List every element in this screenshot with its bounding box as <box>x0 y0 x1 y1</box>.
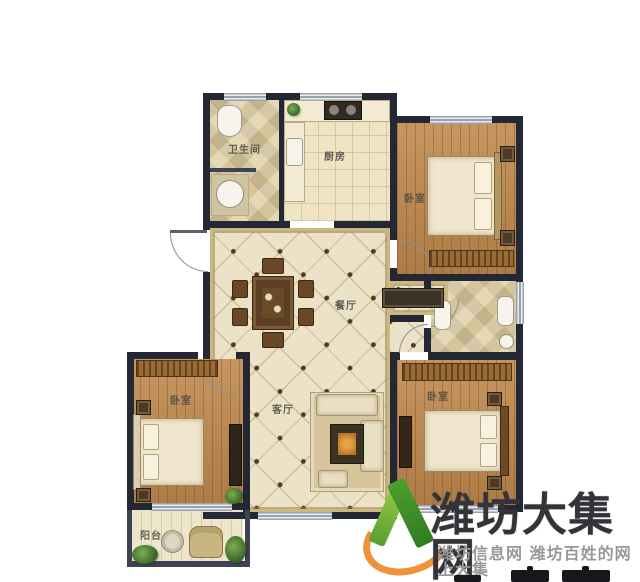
wall <box>232 503 250 510</box>
window <box>516 282 524 324</box>
wall <box>390 315 397 322</box>
dining-chair <box>298 308 314 326</box>
kitchen-sink <box>286 138 303 166</box>
pillow <box>480 415 497 439</box>
wall <box>127 352 198 359</box>
wardrobe <box>136 360 218 377</box>
wall <box>390 100 397 240</box>
cropped-text-fragment <box>582 566 589 582</box>
wall <box>516 116 523 282</box>
window <box>430 116 492 124</box>
tv-cabinet <box>229 424 242 486</box>
wall <box>428 352 523 360</box>
nightstand <box>500 230 515 246</box>
window <box>258 512 332 520</box>
nightstand <box>487 392 502 406</box>
bed-headboard <box>494 152 502 240</box>
plant-icon <box>225 488 243 504</box>
dresser <box>399 416 412 468</box>
wall <box>127 503 152 510</box>
pouf-chair <box>161 530 184 553</box>
sofa <box>316 394 378 416</box>
toilet-icon <box>497 296 514 326</box>
cropped-text-fragment <box>527 566 533 582</box>
dining-chair <box>232 308 248 326</box>
wardrobe <box>402 363 512 381</box>
dining-chair <box>298 280 314 298</box>
pillow <box>143 424 159 450</box>
sink-icon <box>499 334 514 349</box>
dining-chair <box>232 280 248 298</box>
bed-headboard <box>500 406 509 476</box>
pillow <box>474 198 492 230</box>
side-table <box>318 470 348 488</box>
nightstand <box>136 488 151 502</box>
plant-icon <box>287 103 300 116</box>
sink-icon <box>216 180 244 208</box>
plant-icon <box>132 545 158 564</box>
pillow <box>474 162 492 194</box>
room-label-bedroom-left: 卧室 <box>170 392 192 407</box>
bed-headboard <box>133 414 141 490</box>
entry-door-arc <box>170 233 208 272</box>
wall <box>334 221 397 228</box>
toilet-icon <box>217 105 242 137</box>
stove-burner <box>329 105 339 115</box>
nightstand <box>136 400 151 415</box>
wall <box>243 352 250 512</box>
wall <box>210 168 256 172</box>
wall <box>390 274 523 281</box>
balcony-door <box>152 503 232 511</box>
dining-chair <box>262 258 284 274</box>
wall <box>203 272 210 359</box>
room-label-bedroom-top-right: 卧室 <box>404 190 426 205</box>
lounge-chair <box>189 526 223 558</box>
wall <box>203 93 210 230</box>
wall <box>397 315 424 322</box>
room-label-bedroom-bottom-right: 卧室 <box>427 388 449 403</box>
room-label-bathroom: 卫生间 <box>228 141 261 156</box>
dining-chair <box>262 332 284 348</box>
wall <box>245 510 250 566</box>
floor-plan: 卫生间 厨房 卧室 餐厅 客厅 卧室 卧室 阳台 潍坊大集网 潍坊信息网 潍坊百… <box>0 0 640 582</box>
cropped-text-fragment <box>454 575 481 582</box>
plant-icon <box>225 536 246 563</box>
pillow <box>480 443 497 467</box>
hallway-cabinet <box>382 288 444 308</box>
wall <box>127 510 132 566</box>
room-label-dining: 餐厅 <box>335 297 357 312</box>
room-label-living: 客厅 <box>272 401 294 416</box>
nightstand <box>500 146 515 162</box>
stove-burner <box>346 105 356 115</box>
wall <box>390 352 400 360</box>
room-label-balcony: 阳台 <box>140 527 162 542</box>
wardrobe <box>429 250 514 267</box>
window <box>224 93 266 101</box>
wall <box>203 221 290 228</box>
pillow <box>143 454 159 480</box>
room-label-kitchen: 厨房 <box>324 148 346 163</box>
table-setting <box>262 288 284 318</box>
coffee-table-top <box>338 433 356 455</box>
